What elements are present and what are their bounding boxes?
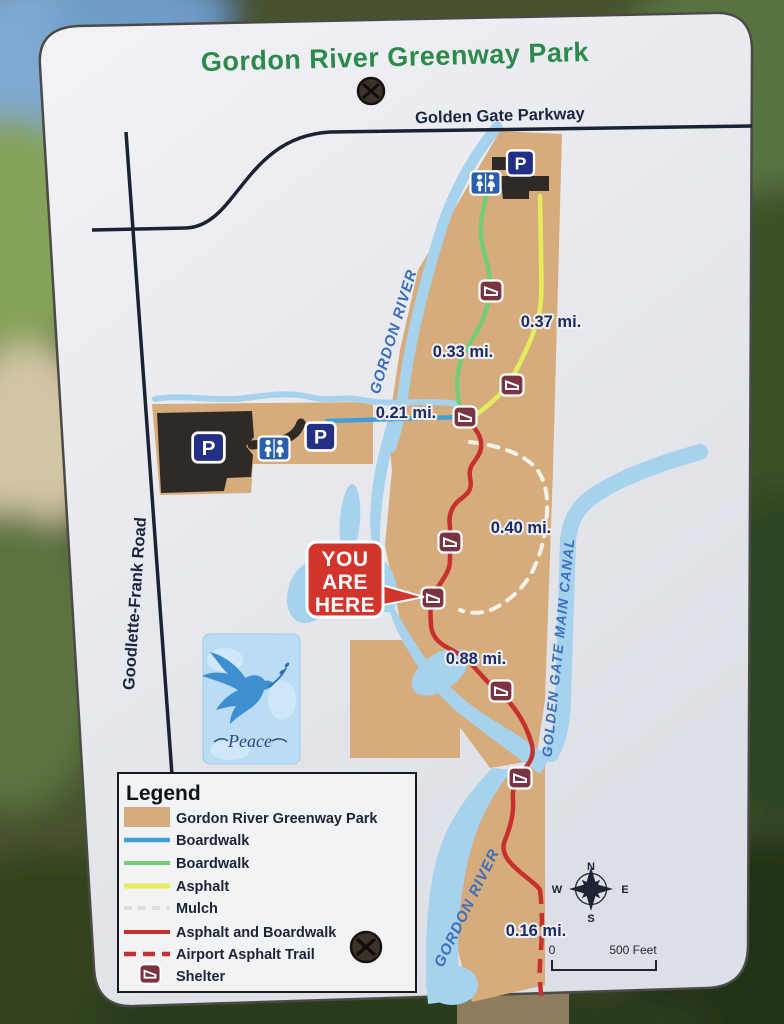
legend-item-boardwalk-blue: Boardwalk [176, 833, 250, 849]
you-are-here-line-2: ARE [322, 571, 368, 594]
legend-item-boardwalk-green: Boardwalk [176, 856, 250, 872]
legend-item-airport-trail: Airport Asphalt Trail [176, 947, 315, 963]
park-sign: Gordon River Greenway Park Golden Ga [40, 13, 752, 1006]
compass-east: E [621, 884, 628, 896]
restroom-icon-west [259, 437, 290, 461]
parking-icon-west-2 [306, 423, 336, 451]
restroom-icon-north [470, 171, 500, 194]
compass-west: W [552, 884, 563, 896]
legend-item-mulch: Mulch [176, 901, 218, 917]
shelter-icon-2 [501, 375, 524, 396]
shelter-icon-7 [509, 768, 532, 789]
legend-item-shelter: Shelter [176, 969, 226, 985]
photo-background: P [0, 0, 784, 1024]
scale-end-label: 500 Feet [609, 943, 657, 957]
distance-label-040: 0.40 mi. [491, 519, 552, 537]
shelter-icon-5 [422, 588, 445, 609]
legend-item-park: Gordon River Greenway Park [176, 811, 378, 827]
compass-north: N [587, 861, 595, 873]
compass-south: S [587, 913, 594, 925]
shelter-icon-1 [480, 281, 503, 302]
shelter-icon-6 [490, 681, 513, 702]
shelter-icon-4 [439, 532, 462, 553]
parking-icon-north [507, 150, 534, 175]
legend-item-asphalt: Asphalt [176, 879, 229, 895]
shelter-icon-3 [454, 407, 477, 428]
peace-label: Peace [227, 731, 272, 751]
legend-title: Legend [126, 782, 201, 805]
legend-item-asphalt-boardwalk: Asphalt and Boardwalk [176, 925, 337, 941]
distance-label-088: 0.88 mi. [446, 650, 507, 668]
you-are-here-line-3: HERE [315, 594, 375, 617]
you-are-here-line-1: YOU [321, 548, 368, 571]
river-widening-south [426, 965, 478, 1005]
legend-shelter-icon [139, 964, 160, 983]
peace-sticker: Peace [202, 634, 300, 764]
distance-label-021: 0.21 mi. [376, 404, 437, 422]
parking-icon-west [193, 433, 225, 463]
legend-swatch-park-area [124, 807, 170, 827]
distance-label-037: 0.37 mi. [521, 313, 582, 331]
building-north-small [492, 157, 507, 170]
distance-label-016: 0.16 mi. [506, 922, 567, 940]
scale-start-label: 0 [549, 943, 556, 957]
distance-label-033: 0.33 mi. [433, 343, 494, 361]
